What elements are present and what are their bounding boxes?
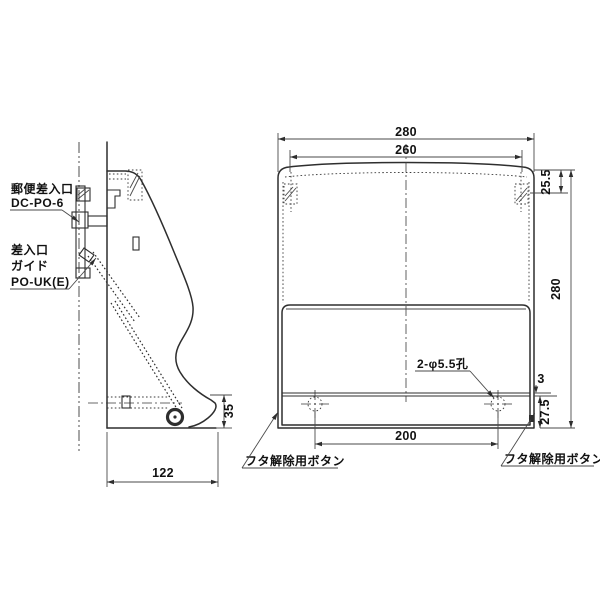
inner-bracket: [107, 170, 142, 250]
mail-slot-hardware: [72, 186, 107, 278]
label-guide-line2: ガイド: [11, 258, 49, 273]
corner-clip-right: [515, 172, 528, 212]
technical-drawing-page: 280 260 25.5 280: [0, 0, 600, 600]
callout-mail-slot: 郵便差入口 DC-PO-6: [10, 181, 79, 222]
dim-label-27-5: 27.5: [538, 399, 552, 425]
mail-slot-technical-drawing: 280 260 25.5 280: [0, 0, 600, 600]
dim-plate-offset: 3: [534, 372, 551, 393]
cover-profile: [107, 171, 216, 427]
hidden-guide-line: [111, 303, 179, 412]
label-mail-slot-model: DC-PO-6: [11, 196, 64, 210]
side-view: [72, 142, 216, 452]
label-guide-model: PO-UK(E): [11, 275, 70, 289]
label-lid-release-right: フタ解除用ボタン: [504, 451, 600, 466]
label-hole-note: 2-φ5.5孔: [417, 357, 468, 371]
dim-label-280-top: 280: [395, 125, 417, 139]
callout-holes: 2-φ5.5孔: [415, 357, 494, 398]
dim-hole-pitch: 200: [315, 411, 498, 449]
dimensions: 280 260 25.5 280: [107, 125, 575, 487]
dim-label-260: 260: [395, 143, 417, 157]
dim-depth: 122: [107, 432, 218, 487]
dim-top-corner-height: 25.5: [530, 169, 568, 195]
label-mail-slot-name: 郵便差入口: [11, 181, 74, 196]
hidden-guide-line2: [115, 301, 182, 408]
front-view: [278, 144, 534, 428]
dim-label-25-5: 25.5: [539, 169, 553, 195]
dim-overall-height: 280: [534, 170, 575, 428]
dim-label-200: 200: [395, 429, 417, 443]
dim-label-280-right: 280: [549, 278, 563, 300]
dim-bottom-zone: 27.5: [534, 396, 557, 428]
dim-label-122: 122: [152, 466, 174, 480]
label-lid-release-left: フタ解除用ボタン: [245, 453, 345, 468]
label-guide-line1: 差入口: [10, 242, 49, 257]
insert-guide: [79, 248, 140, 322]
dim-label-3: 3: [537, 372, 544, 386]
callout-lid-release-left: フタ解除用ボタン: [242, 412, 345, 468]
release-button-section: [88, 396, 182, 408]
dim-label-35: 35: [222, 404, 236, 419]
corner-clip-left: [284, 172, 297, 212]
release-roller-center: [173, 415, 176, 418]
